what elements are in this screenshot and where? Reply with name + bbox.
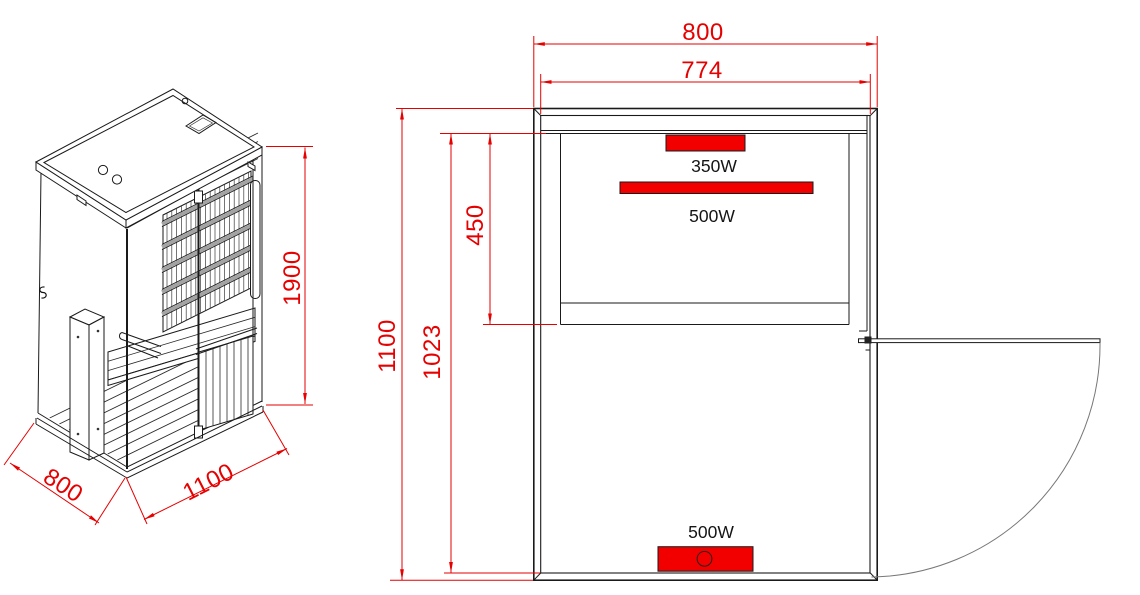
- iso-lid-tab-right: [248, 162, 255, 171]
- iso-dim-depth-label: 800: [38, 463, 88, 508]
- iso-door-handle-mark: [40, 287, 46, 298]
- iso-door-hinge-top: [195, 191, 203, 203]
- plan-dim-inner-width-label: 774: [681, 57, 723, 84]
- iso-dim-width-label: 1100: [179, 458, 239, 506]
- plan-view: 350W 500W 500W 800 774: [374, 19, 1100, 580]
- door-open-panel: [859, 339, 1101, 343]
- plan-heaters: 350W 500W 500W: [620, 135, 813, 571]
- plan-dim-outer-depth: 1100: [374, 109, 533, 581]
- iso-dim-height: 1900: [266, 147, 313, 406]
- heater-back-small: [666, 135, 745, 151]
- plan-dim-inner-depth: 1023: [419, 134, 546, 574]
- plan-dim-inner-width: 774: [541, 57, 871, 114]
- heater-back-small-label: 350W: [691, 156, 737, 176]
- plan-dim-outer-width-label: 800: [682, 19, 724, 46]
- iso-corner-post: [70, 309, 104, 460]
- plan-door: [859, 337, 1101, 578]
- plan-dim-inner-depth-label: 1023: [419, 324, 446, 379]
- heater-front-label: 500W: [688, 522, 734, 542]
- technical-drawing: 1900 800 1100: [0, 0, 1140, 595]
- heater-back-large: [620, 182, 813, 194]
- plan-dim-bench-depth: 450: [462, 134, 557, 325]
- door-swing-arc: [872, 343, 1101, 577]
- door-hinge: [865, 337, 872, 344]
- plan-outer-wall: [534, 109, 877, 581]
- iso-dim-depth: 800: [4, 423, 125, 525]
- heater-front: [658, 547, 753, 572]
- iso-dim-height-label: 1900: [279, 250, 306, 305]
- plan-walls: [534, 109, 877, 581]
- plan-dim-outer-depth-label: 1100: [374, 319, 401, 373]
- plan-dim-bench-depth-label: 450: [462, 204, 489, 246]
- iso-backrest-side-board: [251, 181, 261, 299]
- drawing-canvas: 1900 800 1100: [0, 0, 1140, 595]
- heater-back-large-label: 500W: [689, 206, 735, 226]
- isometric-view: 1900 800 1100: [4, 89, 313, 525]
